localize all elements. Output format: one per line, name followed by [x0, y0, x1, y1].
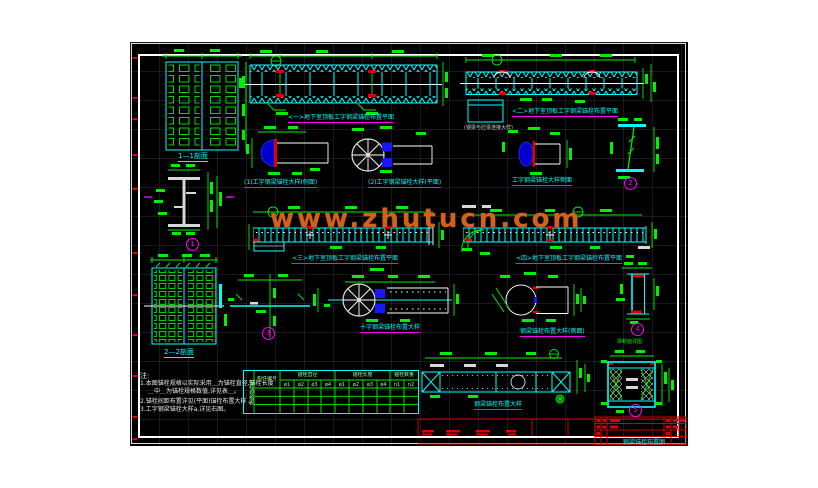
table-group-header: 锚栓数量: [390, 372, 418, 378]
concrete-connection-detail: [468, 100, 503, 122]
table-subcol: ø1: [280, 382, 294, 388]
table-subcol: ø2: [349, 382, 363, 388]
callout-2: 2: [624, 177, 637, 190]
ibeam-section-detail: [144, 164, 234, 235]
table-subcol: n2: [404, 382, 418, 388]
label-anchor-detail-side: 工字钢梁锚栓大样侧面: [512, 177, 572, 186]
table-subcol: ø3: [308, 382, 321, 388]
label-cross-detail: 十字钢梁锚栓布置大样: [360, 324, 420, 333]
table-group-header: 锚栓直径: [280, 372, 335, 378]
z-profile-detail: [610, 118, 659, 179]
table-subcol: ø2: [294, 382, 308, 388]
beam-elevation-2: [460, 54, 656, 103]
table-subcol: ø3: [363, 382, 377, 388]
watermark-text: www.zhutucn.com: [270, 204, 583, 234]
label-beam-elevation-1: <一>地下室顶板工字钢梁锚栓布置平面: [288, 114, 394, 123]
table-component-header: 构件编号: [254, 376, 280, 382]
anchor-detail-plan-2: [352, 126, 432, 173]
label-beam-elevation-4: <四>地下室顶板工字钢梁锚栓布置平面: [516, 255, 622, 264]
label-plan-beam: 钢梁锚栓布置大样: [474, 401, 522, 410]
label-beam-elevation-3: <三>地下室顶板工字钢梁锚栓布置平面: [292, 255, 398, 264]
label-connection-detail: (钢梁与砼梁连接大样): [464, 125, 513, 132]
beam-elevation-1: [239, 50, 448, 115]
cad-canvas[interactable]: 1—1剖面 <一>地下室顶板工字钢梁锚栓布置平面 <二>地下室顶板工字钢梁锚栓布…: [130, 42, 688, 446]
table-subcol: ø4: [377, 382, 390, 388]
table-subcol: ø4: [321, 382, 335, 388]
label-beam-elevation-2: <二>地下室顶板工字钢梁锚栓布置平面: [512, 108, 618, 117]
wheel-plan-detail: [313, 268, 459, 322]
callout-5: 5: [629, 404, 642, 417]
table-subcol: ø1: [335, 382, 349, 388]
callout-1: 1: [186, 238, 199, 251]
label-anchor-detail-2: (2)工字钢梁锚栓大样(平面): [368, 179, 441, 188]
table-subcol: n1: [390, 382, 404, 388]
table-group-header: 锚栓长度: [335, 372, 390, 378]
anchor-schedule-table: 锚栓规格表 构件编号 锚栓直径 锚栓长度 锚栓数量 ø1 ø2 ø3 ø4 ø1…: [243, 370, 419, 414]
label-box-section: 梁断面详图: [617, 339, 642, 346]
titleblock-drawing-title: 钢梁锚栓布置图: [608, 437, 680, 446]
label-anchor-detail-1: (1)工字钢梁锚栓大样(侧面): [244, 179, 317, 188]
circle-plan-detail: [492, 272, 586, 322]
anchor-detail-side-3: [502, 127, 572, 175]
label-section-1-1: 1—1剖面: [178, 153, 208, 162]
channel-section-detail: [616, 255, 659, 324]
page: 1—1剖面 <一>地下室顶板工字钢梁锚栓布置平面 <二>地下室顶板工字钢梁锚栓布…: [0, 0, 818, 488]
label-circle-detail: 钢梁锚栓布置大样(侧面): [520, 328, 585, 337]
callout-4: 4: [631, 323, 644, 336]
bottom-plan-beam: [422, 350, 590, 404]
anchor-detail-side-1: [246, 126, 328, 175]
section-1-1-plan: [162, 49, 246, 150]
section-2-2-plan: [144, 254, 227, 344]
label-section-2-2: 2—2剖面: [164, 349, 194, 358]
callout-3: 3: [262, 327, 275, 340]
table-corner-header: 锚栓规格表: [245, 372, 254, 412]
